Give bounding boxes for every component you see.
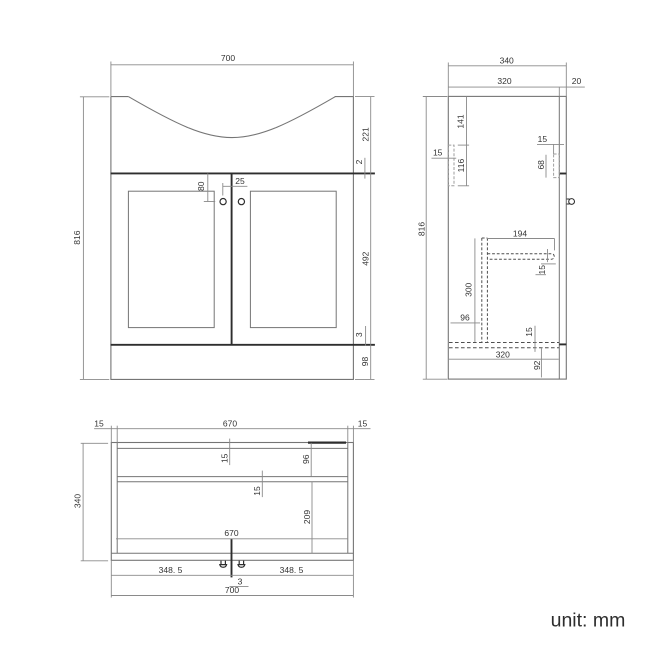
svg-text:340: 340 bbox=[73, 494, 83, 508]
svg-text:3: 3 bbox=[354, 332, 364, 337]
svg-text:15: 15 bbox=[252, 486, 262, 496]
svg-text:20: 20 bbox=[572, 76, 582, 86]
svg-text:209: 209 bbox=[302, 510, 312, 524]
svg-text:15: 15 bbox=[537, 265, 547, 275]
svg-text:816: 816 bbox=[416, 222, 426, 236]
svg-text:300: 300 bbox=[463, 282, 473, 296]
svg-text:96: 96 bbox=[301, 454, 311, 464]
svg-text:320: 320 bbox=[497, 76, 511, 86]
svg-text:15: 15 bbox=[538, 134, 548, 144]
svg-text:670: 670 bbox=[224, 528, 238, 538]
svg-text:320: 320 bbox=[496, 349, 510, 359]
svg-text:492: 492 bbox=[361, 251, 371, 265]
svg-text:25: 25 bbox=[235, 176, 245, 186]
svg-text:700: 700 bbox=[221, 53, 235, 63]
svg-text:15: 15 bbox=[433, 148, 443, 158]
svg-text:92: 92 bbox=[532, 360, 542, 370]
svg-text:670: 670 bbox=[223, 419, 237, 429]
svg-text:80: 80 bbox=[196, 181, 206, 191]
svg-text:348. 5: 348. 5 bbox=[280, 565, 304, 575]
svg-text:141: 141 bbox=[455, 114, 465, 128]
svg-text:96: 96 bbox=[460, 312, 470, 322]
svg-text:816: 816 bbox=[72, 230, 82, 244]
svg-text:221: 221 bbox=[361, 127, 371, 141]
svg-text:15: 15 bbox=[94, 419, 104, 429]
svg-text:2: 2 bbox=[354, 159, 364, 164]
svg-text:348. 5: 348. 5 bbox=[159, 565, 183, 575]
svg-text:15: 15 bbox=[358, 419, 368, 429]
svg-text:15: 15 bbox=[524, 327, 534, 337]
svg-text:700: 700 bbox=[225, 585, 239, 595]
svg-text:116: 116 bbox=[456, 159, 466, 173]
svg-text:15: 15 bbox=[220, 453, 230, 463]
svg-text:194: 194 bbox=[513, 228, 527, 238]
svg-text:68: 68 bbox=[536, 160, 546, 170]
svg-text:unit: mm: unit: mm bbox=[551, 610, 626, 632]
svg-text:340: 340 bbox=[500, 56, 514, 66]
svg-text:98: 98 bbox=[360, 357, 370, 367]
